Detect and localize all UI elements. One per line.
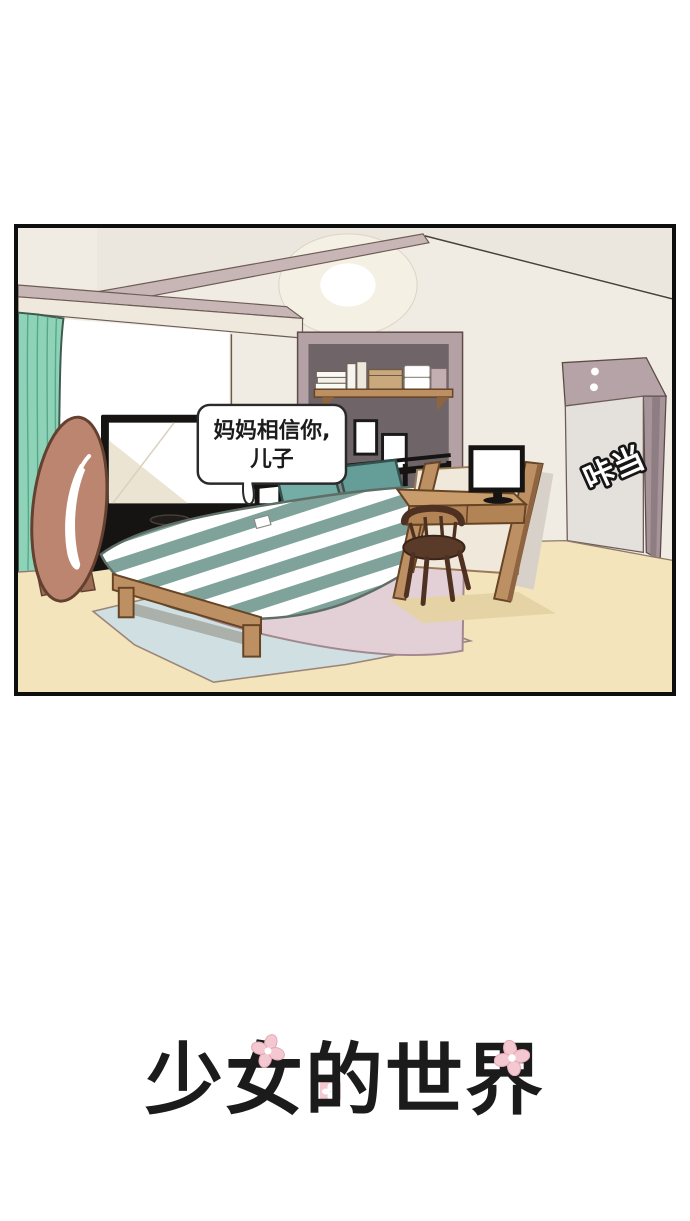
speech-bubble-tail: [243, 483, 254, 505]
shelf-box: [369, 370, 403, 390]
flower-icon: [251, 1034, 285, 1068]
comic-panel: 咔当 妈妈相信你, 儿子: [14, 224, 676, 696]
speech-bubble-line1: 妈妈相信你,: [213, 417, 330, 443]
series-title: 少女的世界: [145, 1036, 545, 1126]
shelf-towel: [404, 366, 430, 378]
speech-bubble-line2: 儿子: [249, 447, 294, 472]
comic-page: 咔当 妈妈相信你, 儿子 少女的世界: [0, 0, 690, 1221]
shelf-book-upright: [347, 364, 356, 390]
ceiling: [18, 228, 672, 338]
shelf-board: [314, 389, 452, 397]
bedroom-illustration: 咔当 妈妈相信你, 儿子: [18, 228, 672, 692]
picture-frame: [355, 421, 377, 454]
shelf-book: [316, 372, 346, 378]
ceiling-lamp: [320, 263, 375, 306]
flower-icon: [494, 1040, 530, 1076]
